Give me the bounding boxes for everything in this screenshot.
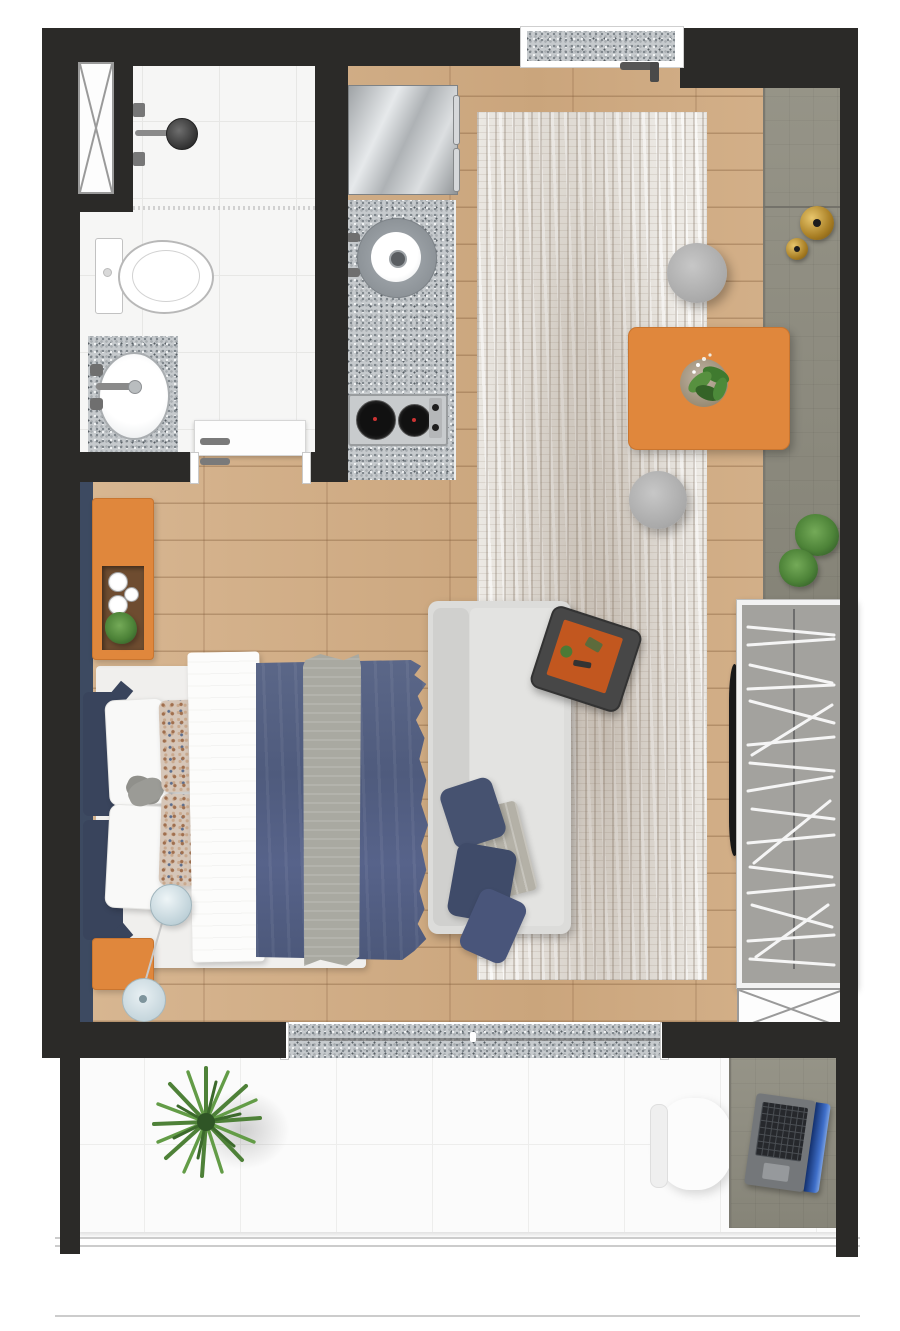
pouf-stool: [667, 243, 727, 303]
floorplan-canvas: [0, 0, 900, 1331]
bed-duvet-white: [187, 651, 264, 962]
chair-backrest: [650, 1104, 668, 1188]
fridge-handle-icon: [453, 148, 460, 192]
wall-balcony-right: [662, 1022, 845, 1058]
balcony-railing: [55, 1245, 860, 1247]
faucet-handle-icon: [90, 364, 103, 376]
toilet-flush-button: [103, 268, 112, 277]
exhaust-shaft: [78, 62, 114, 194]
counter-seam: [763, 206, 840, 208]
fridge-handle-icon: [453, 95, 460, 145]
sink-drain: [389, 250, 407, 268]
sliding-door-latch: [470, 1032, 476, 1042]
faucet-handle-icon: [346, 233, 360, 242]
laptop: [744, 1093, 836, 1195]
door-handle-icon: [200, 438, 230, 445]
control-knob-icon: [432, 424, 439, 431]
decor-bowl-center: [813, 219, 821, 227]
table-plant-icon: [668, 345, 744, 421]
laptop-keyboard: [755, 1102, 808, 1162]
tray-book: [546, 619, 623, 693]
shaft-x-icon: [80, 64, 112, 192]
entry-door-threshold: [527, 31, 675, 61]
balcony-plant-icon: [142, 1058, 270, 1186]
tile-watermark: [133, 206, 315, 210]
wardrobe: [737, 600, 855, 988]
faucet-tip: [128, 380, 142, 394]
faucet-handle-icon: [346, 268, 360, 277]
wall-bathroom-kitchen: [315, 28, 348, 482]
toilet-seat: [132, 250, 200, 302]
refrigerator: [348, 85, 458, 195]
counter-plant-icon: [779, 549, 818, 587]
vanity-sink-basin: [98, 352, 170, 440]
entry-door-handle-mount: [650, 62, 659, 82]
wall-right: [840, 88, 858, 1022]
burner-indicator: [412, 418, 416, 422]
floor-lamp-base-hub: [139, 995, 147, 1003]
door-jamb: [302, 452, 311, 484]
door-jamb: [190, 452, 199, 484]
sliding-door-threshold: [286, 1024, 666, 1058]
laptop-touchpad: [762, 1163, 790, 1182]
door-handle-icon: [200, 458, 230, 465]
shelf-plant-icon: [105, 612, 137, 644]
bed-runner-blanket: [303, 654, 361, 966]
shower-head-icon: [166, 118, 198, 150]
floor-lamp-shade: [150, 884, 192, 926]
balcony-railing: [55, 1237, 860, 1239]
wardrobe-hangers-icon: [742, 605, 840, 973]
shower-knob-icon: [133, 152, 145, 166]
control-knob-icon: [432, 404, 439, 411]
wall-balcony-left: [80, 1022, 286, 1058]
wall-left-balcony: [60, 1058, 80, 1254]
wall-top-right: [680, 28, 858, 88]
wall-bathroom-south-left: [80, 452, 197, 482]
faucet-handle-icon: [90, 398, 103, 410]
decor-bowl-center: [794, 246, 800, 252]
pouf-stool: [629, 471, 687, 529]
burner-indicator: [373, 417, 377, 421]
shower-knob-icon: [133, 103, 145, 117]
sliding-door-rail: [286, 1038, 666, 1041]
balcony-railing: [55, 1315, 860, 1317]
